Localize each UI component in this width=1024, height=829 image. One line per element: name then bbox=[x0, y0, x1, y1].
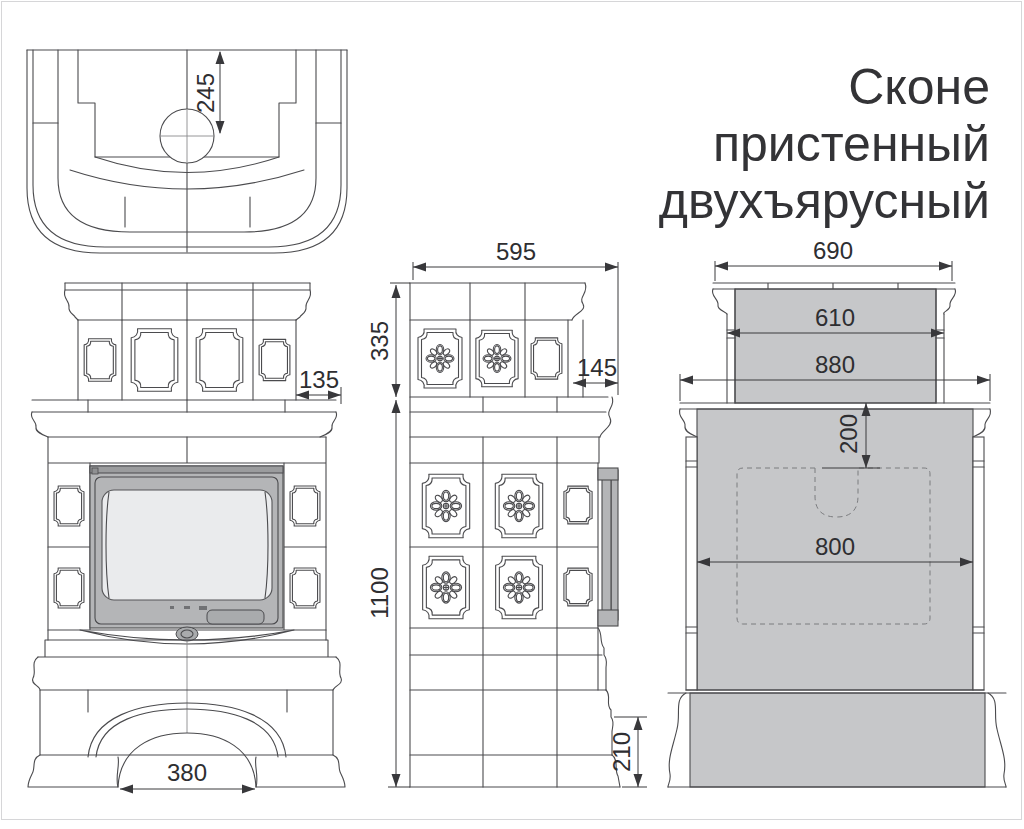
rosette-ornament bbox=[503, 572, 534, 603]
tile-cartouche bbox=[259, 339, 290, 380]
door-vent bbox=[184, 606, 190, 609]
dim-label-145: 145 bbox=[577, 354, 617, 381]
rosette-ornament bbox=[430, 572, 461, 603]
dim-label-1100: 1100 bbox=[366, 567, 393, 619]
firebox-door bbox=[90, 466, 283, 628]
door-handle bbox=[207, 610, 264, 624]
dim-front-ledge: 145 bbox=[573, 354, 618, 388]
tile-cartouche bbox=[564, 486, 592, 524]
drawing-sheet: 245 135 bbox=[0, 0, 1024, 829]
dim-body-height: 1100 bbox=[366, 400, 410, 787]
tile-cartouche bbox=[54, 568, 84, 608]
title-line-3: двухъярусный bbox=[659, 173, 990, 229]
rosette-ornament bbox=[430, 490, 461, 521]
dim-label-245: 245 bbox=[192, 73, 219, 113]
door-side-profile bbox=[598, 468, 618, 626]
apron-knob bbox=[176, 627, 198, 641]
door-vent bbox=[199, 606, 207, 610]
dim-label-690: 690 bbox=[813, 237, 853, 264]
dim-label-800: 800 bbox=[815, 533, 855, 560]
rosette-ornament bbox=[426, 345, 454, 373]
tile-cartouche bbox=[290, 486, 320, 526]
door-vent bbox=[170, 606, 174, 609]
plan-view: 245 bbox=[27, 50, 347, 253]
wall-contact-base bbox=[690, 693, 985, 787]
dim-label-210: 210 bbox=[608, 732, 635, 772]
tile-cartouche bbox=[290, 568, 320, 608]
dim-label-610: 610 bbox=[815, 304, 855, 331]
back-view: 690 610 880 200 800 bbox=[668, 237, 1006, 787]
dim-upper-tier-inset: 135 bbox=[296, 366, 341, 404]
title-line-1: Сконе bbox=[848, 59, 990, 115]
dim-upper-tier-height: 335 bbox=[366, 283, 410, 397]
dim-label-200: 200 bbox=[835, 414, 862, 454]
dim-label-880: 880 bbox=[815, 351, 855, 378]
dim-label-595: 595 bbox=[496, 238, 536, 265]
rosette-ornament bbox=[483, 345, 511, 373]
tile-cartouche bbox=[84, 339, 116, 381]
dim-plinth-height: 210 bbox=[608, 717, 647, 787]
dim-arch-width: 380 bbox=[120, 759, 255, 794]
door-glass bbox=[102, 490, 272, 600]
dim-label-380: 380 bbox=[167, 759, 207, 786]
tile-cartouche bbox=[131, 329, 178, 392]
dim-upper-cornice-width: 690 bbox=[715, 237, 952, 281]
front-view: 135 bbox=[28, 283, 345, 794]
tile-cartouche bbox=[564, 568, 592, 606]
tile-cartouche bbox=[531, 338, 562, 379]
dim-label-335: 335 bbox=[366, 321, 393, 361]
title-line-2: пристенный bbox=[713, 116, 990, 172]
tile-cartouche bbox=[196, 329, 243, 392]
side-view: 595 335 1100 145 210 bbox=[366, 238, 647, 787]
rosette-ornament bbox=[503, 490, 534, 521]
title-block: Сконе пристенный двухъярусный bbox=[659, 59, 990, 229]
dim-label-135: 135 bbox=[299, 366, 339, 393]
door-hinge bbox=[92, 468, 98, 474]
tile-cartouche bbox=[54, 486, 84, 526]
